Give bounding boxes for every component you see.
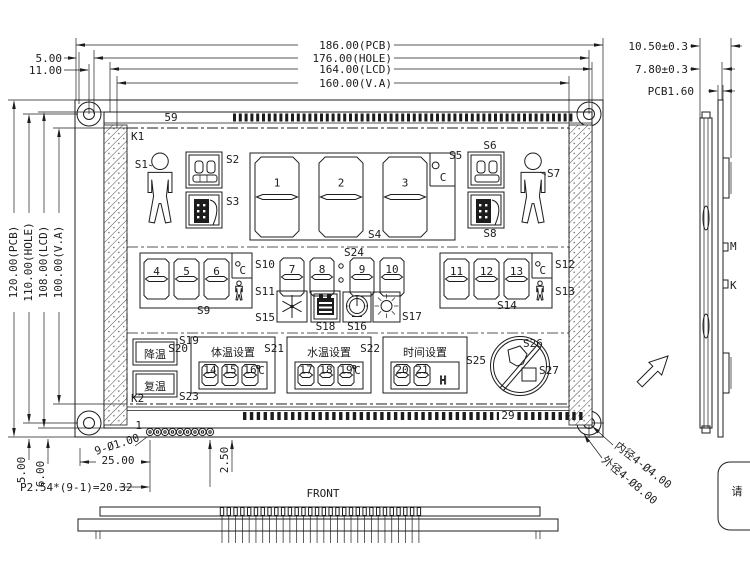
seven-segment-digit: 1 [255,157,299,237]
celsius-icon: C [236,262,246,277]
machine-dot [479,216,481,218]
mounting-tab [723,243,728,251]
pin-head [241,508,244,516]
arrowhead [117,81,126,85]
pad [312,412,315,420]
cool-label: 降温 [144,347,166,361]
pad [274,114,277,122]
pin-head [376,508,379,516]
drawing-circle [77,411,101,435]
pin-head [397,508,400,516]
dim-pcb-width: 186.00(PCB) [319,39,392,52]
tab-label-m: M [730,240,737,253]
celsius-letter: C [239,264,246,277]
seven-segment-digit: 2 [319,157,363,237]
pin-hole [176,428,183,435]
temp-box-right: 111213C [440,253,552,308]
pin-head [390,508,393,516]
pad [565,412,568,420]
dim-lcd-width: 164.00(LCD) [319,63,392,76]
pin-hole-center [201,431,203,433]
pin-head [275,508,278,516]
end-cap [702,112,710,118]
corner-label-k1: K1 [131,130,144,143]
time-setting: 时间设置2021H [383,337,467,393]
pad [483,412,486,420]
person-head [152,153,169,170]
pad [500,114,503,122]
seven-segment-digit: 17 [298,364,314,386]
arrowhead [580,56,589,60]
person-icon-small [537,281,544,300]
pad [318,412,321,420]
label: S14 [497,299,517,312]
time-digits: 78S24910 [280,246,404,296]
drawing-rect [186,152,222,188]
seven-segment-digit: 9 [350,258,374,296]
pad [297,114,300,122]
pin-hole [146,428,153,435]
pad [366,114,369,122]
seven-segment-digit: 8 [310,258,334,296]
dim-pin-offset: 25.00 [101,454,134,467]
pad [538,412,541,420]
machine-dot [197,210,199,212]
colon-dot [339,278,343,282]
hose-line [492,200,499,225]
pad [360,412,363,420]
pad [535,114,538,122]
seven-segment-digit: 20 [394,364,410,386]
arrowhead [46,439,50,448]
dim-pcb-thickness: PCB1.60 [648,85,694,98]
label: S17 [402,310,422,323]
arrowhead [12,428,16,437]
toe [489,161,497,173]
pin-head [322,508,325,516]
pad-count-top: 59 [164,111,177,124]
pcb-side [718,100,723,437]
arrowhead [42,419,46,428]
digit-number: 8 [319,263,326,276]
pin-hole [154,428,161,435]
lcd-content: K1K2S1S7S2S3S6S8123CS5S4456CS10S11S978S2… [131,130,575,405]
label: S16 [347,320,367,333]
pin-hole [206,428,213,435]
pad [245,114,248,122]
arrowhead [27,439,31,448]
dim-lcd-offset: 11.00 [29,64,62,77]
seven-segment-digit: 7 [280,258,304,296]
machine-icon [186,192,222,228]
person-icon-left [148,153,172,223]
segment-outline [319,157,363,237]
drawing-rect [468,152,504,188]
seven-segment-digit: 12 [474,259,499,299]
pin-head [336,508,339,516]
pad [384,114,387,122]
pin-hole [199,428,206,435]
arrowhead [560,81,569,85]
pad [291,114,294,122]
pin-hole-center [209,431,211,433]
pin-head [410,508,413,516]
person-body [236,286,243,300]
pad [332,412,335,420]
label: S18 [316,320,336,333]
pin-head [288,508,291,516]
pad [476,412,479,420]
heater-bar [319,307,332,309]
pad [413,114,416,122]
pad [523,114,526,122]
pin-head [309,508,312,516]
pad [250,114,253,122]
pad [372,114,375,122]
pin-head [404,508,407,516]
pad [511,114,514,122]
digit-number: 13 [510,265,523,278]
label: S9 [197,304,210,317]
segment-outline [255,157,299,237]
end-cap [702,426,710,433]
engineering-drawing-svg: 5929K1K2S1S7S2S3S6S8123CS5S4456CS10S11S9… [0,0,750,569]
pin-head [356,508,359,516]
label: S8 [483,227,496,240]
heater-tab [319,294,323,298]
pad-count-bottom: 29 [501,409,514,422]
pin-head [254,508,257,516]
pin-hole [191,428,198,435]
digit-number: 11 [450,265,463,278]
person-body [521,172,545,223]
square-shape [522,368,536,381]
label: S25 [466,354,486,367]
pin-hole-row [146,428,213,435]
pad [394,412,397,420]
pad [579,412,582,420]
pad [552,114,555,122]
machine-dot [203,210,205,212]
pad [419,114,422,122]
component-bump [723,353,729,393]
pin-head [329,508,332,516]
label: S15 [255,311,275,324]
pad [564,114,567,122]
digit-number: 5 [183,265,190,278]
machine-dot [485,204,487,206]
arrowhead [80,460,89,464]
pad [415,412,418,420]
digit-number: 12 [480,265,493,278]
pad [373,412,376,420]
person-body [148,172,172,223]
digit-number: 7 [289,263,296,276]
person-head [538,281,543,286]
machine-dot [197,216,199,218]
top-pad-row [233,114,572,122]
pad [477,114,480,122]
corner-hole-annotation: 内径4-Ø4.00外径4-Ø8.00 [582,356,674,507]
arrowhead [57,395,61,404]
pad [270,412,273,420]
pin-head [370,508,373,516]
tab-label-k: K [730,279,737,292]
arrowhead [583,67,592,71]
pin-head [220,508,223,516]
sun-ray [392,311,395,314]
label: S12 [555,258,575,271]
pad [459,114,462,122]
pad [529,114,532,122]
segment-middle [385,195,426,200]
note-text: 请 [732,485,743,498]
setting-title: 体温设置 [211,345,255,359]
digit-number: 3 [402,177,409,190]
pad [494,114,497,122]
hour-glyph: H [440,374,447,387]
cad-drawing: 5929K1K2S1S7S2S3S6S8123CS5S4456CS10S11S9… [0,0,750,569]
machine-dot [485,216,487,218]
seven-segment-digit: 14 [202,364,218,386]
digit-number: 19 [339,364,352,377]
arrowhead [12,100,16,109]
glass-bar [100,507,540,516]
pad [424,114,427,122]
bottom-view: FRONT [78,487,558,543]
pad [469,412,472,420]
drawing-circle [381,301,392,312]
heater-tab [327,294,331,298]
pad [531,412,534,420]
pad [546,114,549,122]
label: S22 [360,342,380,355]
arrowhead [42,112,46,121]
machine-dot [485,210,487,212]
pad [540,114,543,122]
pad [387,412,390,420]
sun-ray [378,298,381,301]
machine-dot [479,204,481,206]
pad [346,412,349,420]
heater-bar [319,302,332,304]
pin-head [383,508,386,516]
connector-pins [220,508,420,544]
dim-height: 120.00(PCB) [7,226,20,299]
pad [448,114,451,122]
pad [545,412,548,420]
digit-number: 14 [203,364,217,377]
sun-ray [378,311,381,314]
pad [303,114,306,122]
pad [463,412,466,420]
celsius-icon: C [536,262,546,277]
pin-hole-center [186,431,188,433]
label: S21 [264,342,284,355]
celsius-letter: C [440,171,447,184]
digit-number: 2 [338,177,345,190]
digit-number: 21 [415,364,428,377]
dim-pin-edge: 2.50 [218,447,231,474]
pin-head [315,508,318,516]
celsius-icon: C [353,364,361,377]
front-view-label: FRONT [306,487,339,500]
pad [355,114,358,122]
machine-body [194,199,209,223]
digit-number: 17 [299,364,312,377]
arrowhead [57,128,61,137]
seven-segment-digit: 16 [242,364,258,386]
pad [421,412,424,420]
pad [366,412,369,420]
pad [552,412,555,420]
pin-head [227,508,230,516]
pad [390,114,393,122]
pad [453,114,456,122]
mounting-tab [723,280,728,288]
pad [325,412,328,420]
toe [477,161,485,173]
digit-number: 1 [274,177,281,190]
feet-icon [186,152,222,188]
pad [430,114,433,122]
pad [449,412,452,420]
pad [243,412,246,420]
sun-ray [392,298,395,301]
seven-segment-digit: 13 [504,259,529,299]
sole [475,175,499,182]
machine-dot [203,216,205,218]
pad [257,412,260,420]
arrowhead [709,89,718,93]
pin-head [247,508,250,516]
drawing-circle [84,418,95,429]
seven-segment-digit: 5 [174,259,199,299]
pcb-bar [78,519,558,531]
seven-segment-digit: 21 [414,364,430,386]
pad [277,412,280,420]
machine-dot [203,204,205,206]
pad [488,114,491,122]
person-icon-right [521,153,545,223]
pin-head [261,508,264,516]
dim-height: 108.00(LCD) [37,226,50,299]
arrowhead [94,56,103,60]
side-view: MK [700,100,737,437]
pin-head [268,508,271,516]
dim-va-width: 160.00(V.A) [319,77,392,90]
pad [349,114,352,122]
seven-segment-digit: 6 [204,259,229,299]
seven-segment-digit: 4 [144,259,169,299]
pad [298,412,301,420]
pin-head [363,508,366,516]
pin-head [302,508,305,516]
label: S24 [344,246,364,259]
arrowhead [141,485,150,489]
celsius-letter: C [539,264,546,277]
pin-head [417,508,420,516]
pad [378,114,381,122]
sole [193,175,217,182]
temp-box-left: 456C [140,253,252,308]
pad [353,412,356,420]
celsius-letter: C [354,364,361,377]
glass-stack [700,118,712,428]
label: S13 [555,285,575,298]
label: S1 [135,158,148,171]
component-bump [723,158,729,198]
digit-number: 4 [153,265,160,278]
pad [326,114,329,122]
leader [149,165,152,166]
pad [361,114,364,122]
pad [314,114,317,122]
arrowhead [110,67,119,71]
pad [559,412,562,420]
pin-head [349,508,352,516]
celsius-icon: C [257,364,265,377]
pad [471,114,474,122]
pad [256,114,259,122]
label: S3 [226,195,239,208]
pad [569,114,572,122]
pad [279,114,282,122]
pin-hole [184,428,191,435]
celsius-letter: C [258,364,265,377]
arrowhead [208,440,212,449]
label: S2 [226,153,239,166]
dim-hole-bottom: 5.00 [15,457,28,484]
dim-total-depth: 10.50±0.3 [628,40,688,53]
arrowhead [27,414,31,423]
label: S27 [539,364,559,377]
pad [239,114,242,122]
pad [250,412,253,420]
label: S10 [255,258,275,271]
label: S23 [179,390,199,403]
pad [517,412,520,420]
pin-head [295,508,298,516]
arrowhead [141,460,150,464]
dim-pin-pitch: P2.54*(9-1)=20.32 [20,481,133,494]
label: S11 [255,285,275,298]
pad [506,114,509,122]
digit-number: 16 [243,364,256,377]
seven-segment-digit: 3 [383,157,427,237]
person-head [237,281,242,286]
seven-segment-digit: 18 [318,364,334,386]
arrowhead [691,67,700,71]
digit-number: 6 [213,265,220,278]
label: S26 [523,337,543,350]
machine-dot [197,204,199,206]
person-icon-small [236,281,243,300]
pad [320,114,323,122]
label: S7 [547,167,560,180]
arrowhead [80,68,89,72]
pad [332,114,335,122]
pin-hole-center [194,431,196,433]
label: S5 [449,149,462,162]
pin-hole-center [156,431,158,433]
pin-hole-center [164,431,166,433]
pad [291,412,294,420]
bezel-hatch-right [569,125,592,425]
arrowhead [76,43,85,47]
mounting-hole [77,411,101,435]
dimensions-right: 10.50±0.37.80±0.3PCB1.60 [628,38,742,158]
